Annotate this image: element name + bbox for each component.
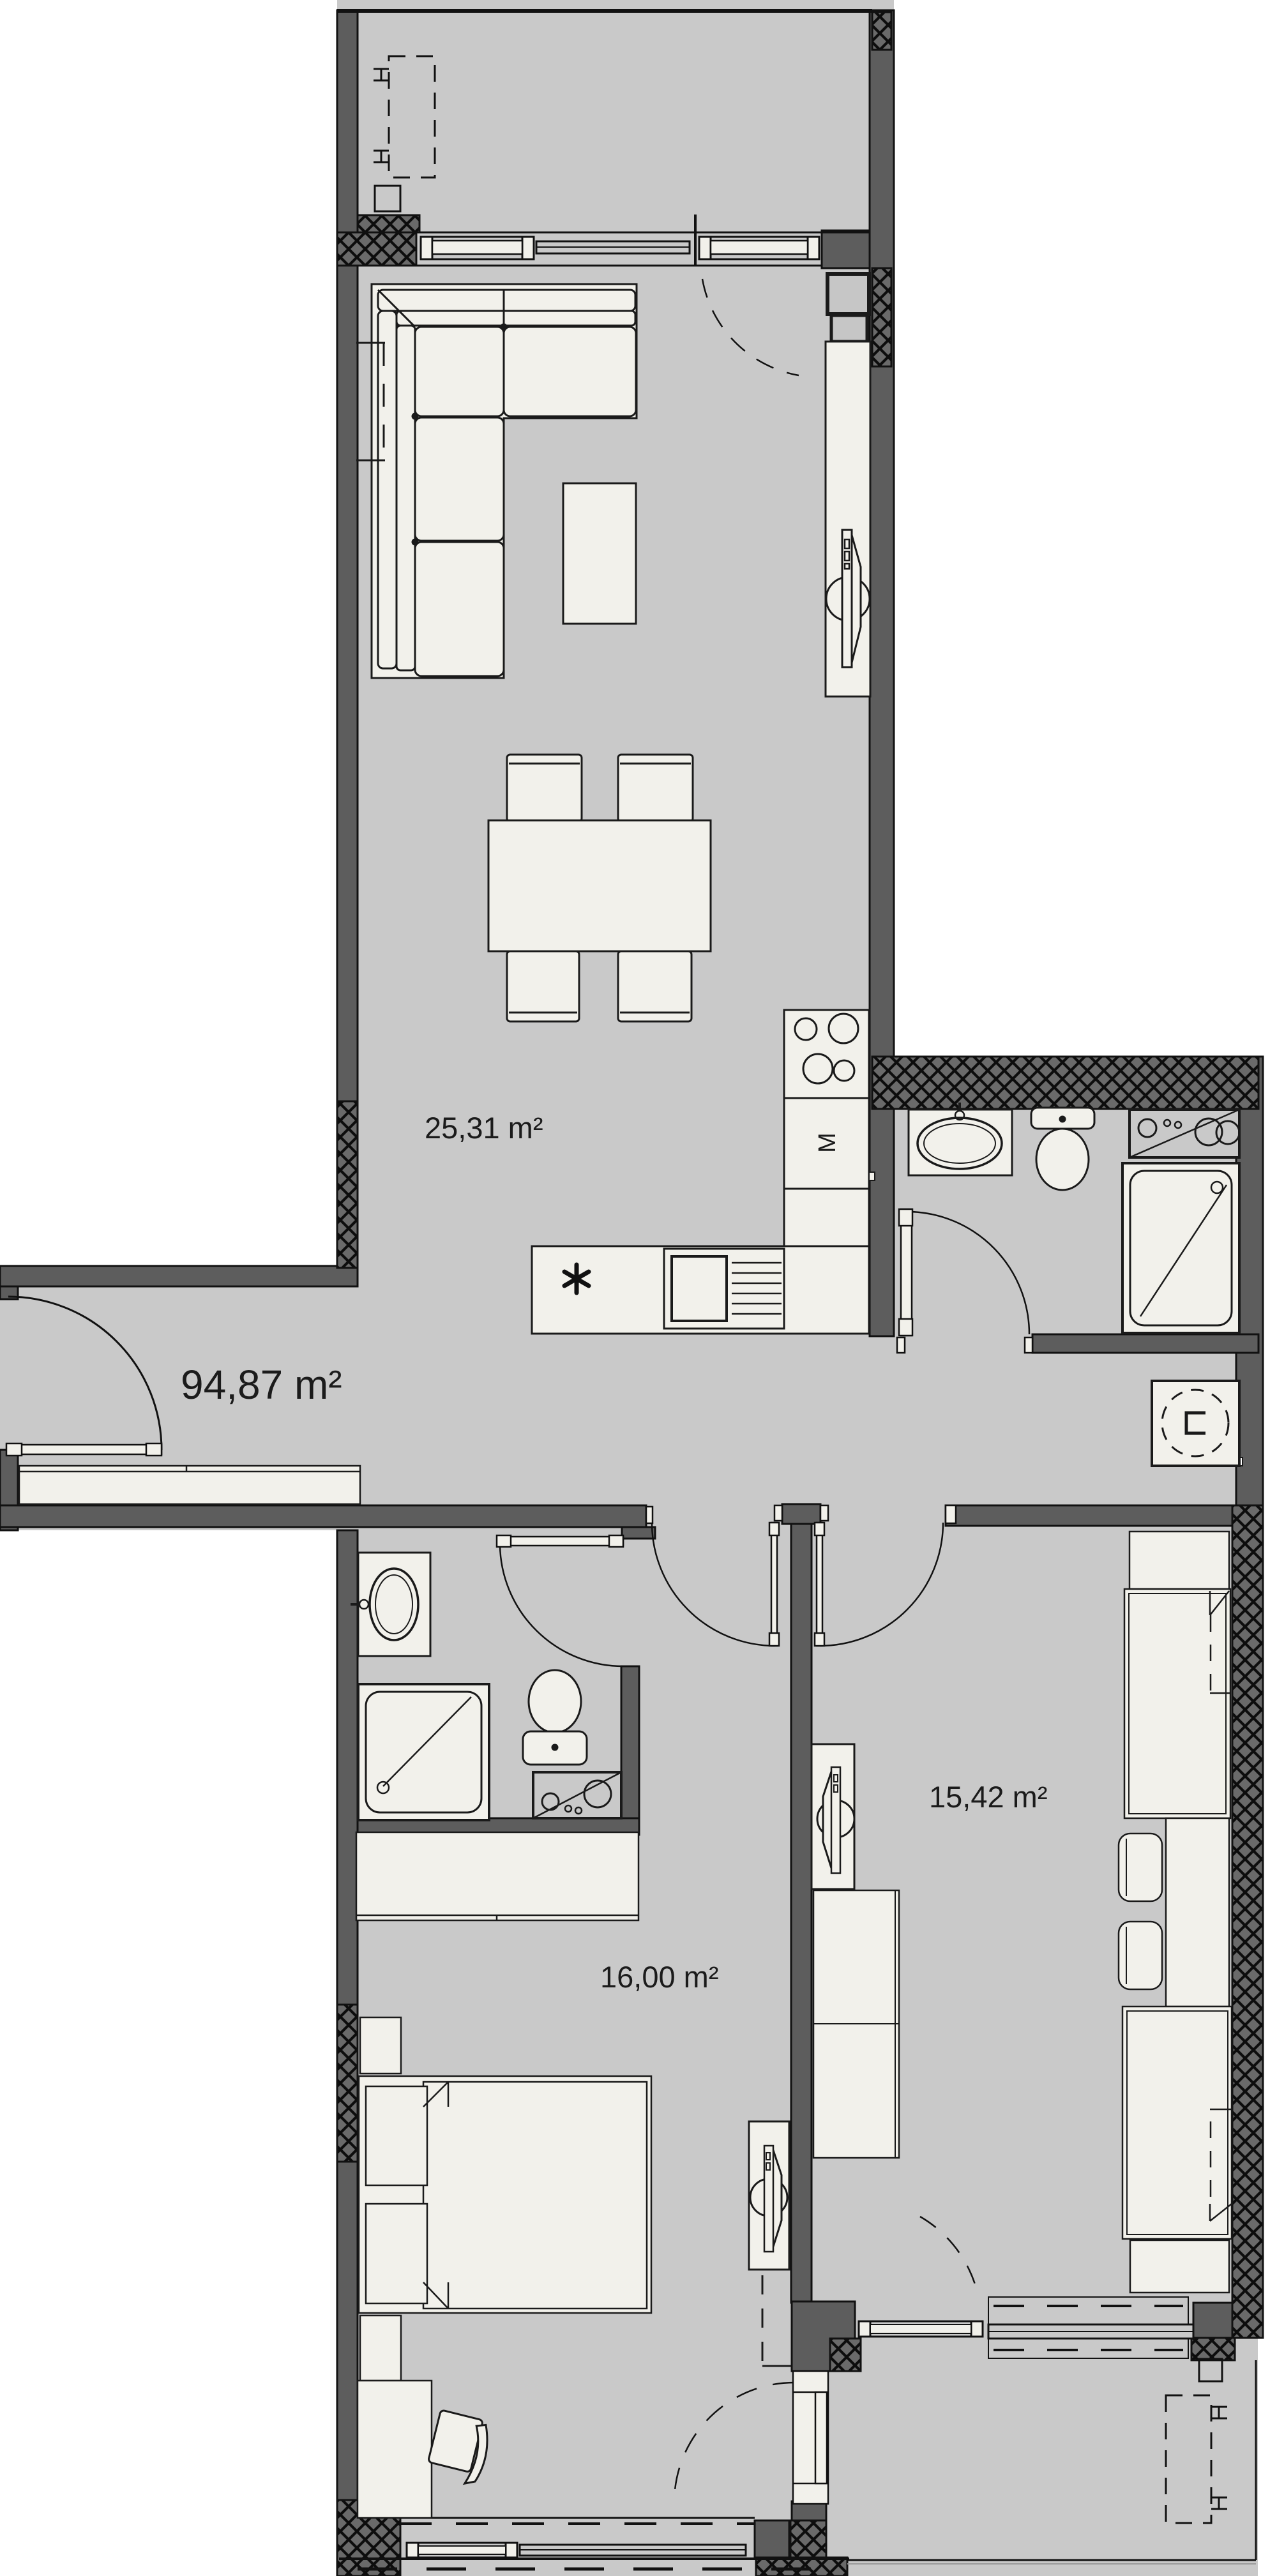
svg-text:25,31 m²: 25,31 m² <box>425 1111 543 1145</box>
svg-text:16,00 m²: 16,00 m² <box>600 1960 718 1994</box>
svg-text:M: M <box>814 1133 841 1153</box>
svg-text:15,42 m²: 15,42 m² <box>929 1780 1047 1814</box>
svg-text:94,87 m²: 94,87 m² <box>181 1362 342 1408</box>
